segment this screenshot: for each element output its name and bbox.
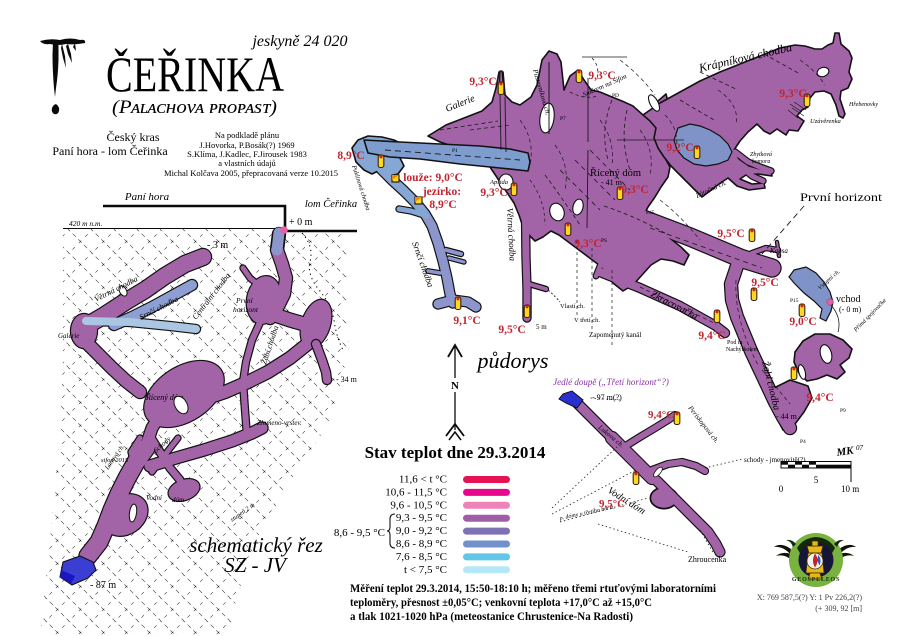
svg-text:Jedlé doupě („Třetí horizont“?: Jedlé doupě („Třetí horizont“?) (553, 377, 669, 387)
svg-text:9,3°C: 9,3°C (469, 76, 496, 88)
svg-text:Kapsa: Kapsa (769, 247, 788, 255)
svg-text:GEOSPELEOS: GEOSPELEOS (792, 577, 840, 583)
svg-text:Zhroucenka: Zhroucenka (688, 555, 727, 564)
svg-text:7,6 - 8,5 °C: 7,6 - 8,5 °C (396, 551, 447, 563)
svg-text:Měření teplot 29.3.2014, 15:50: Měření teplot 29.3.2014, 15:50-18:10 h; … (350, 583, 717, 595)
svg-text:+ 0 m: + 0 m (289, 217, 313, 228)
svg-text:P7: P7 (560, 116, 566, 122)
svg-text:9,5°C: 9,5°C (599, 498, 625, 510)
svg-text:P45: P45 (646, 210, 655, 216)
svg-text:a vlastních údajů: a vlastních údajů (218, 158, 276, 168)
svg-text:8,9°C: 8,9°C (337, 150, 364, 162)
svg-text:PD: PD (612, 93, 619, 99)
svg-text:dóm: dóm (172, 496, 184, 504)
svg-text:N: N (451, 380, 459, 392)
svg-text:8,6 - 8,9 °C: 8,6 - 8,9 °C (396, 538, 447, 550)
svg-text:X: 769 587,5(?) Y: 1 Pv 226: X: 769 587,5(?) Y: 1 Pv 226,2(?) (757, 593, 863, 602)
svg-text:P1: P1 (452, 148, 458, 154)
svg-text:5 m: 5 m (536, 323, 547, 331)
svg-text:- 34 m: - 34 m (336, 375, 358, 384)
svg-text:- 87 m: - 87 m (90, 580, 116, 591)
svg-text:8,9°C: 8,9°C (429, 199, 456, 211)
svg-text:a tlak 1021-1020 hPa (meteosta: a tlak 1021-1020 hPa (meteostanice Chrus… (350, 611, 633, 623)
svg-text:(+ 309, 92 [m]: (+ 309, 92 [m] (815, 604, 862, 613)
svg-text:Na podkladě plánu: Na podkladě plánu (215, 130, 280, 140)
svg-text:9,6 - 10,5 °C: 9,6 - 10,5 °C (390, 499, 447, 511)
svg-text:0: 0 (779, 484, 784, 494)
svg-text:P15: P15 (790, 298, 799, 304)
svg-text:- 44 m: - 44 m (776, 412, 798, 421)
svg-text:- 97 m(?): - 97 m(?) (592, 393, 622, 402)
svg-text:9,5°C: 9,5°C (751, 277, 778, 289)
svg-text:(Pᴀʟᴀᴄʜᴏᴠᴀ ᴘʀᴏᴘᴀsᴛ): (Pᴀʟᴀᴄʜᴏᴠᴀ ᴘʀᴏᴘᴀsᴛ) (112, 97, 277, 118)
svg-text:9,3°C: 9,3°C (480, 187, 507, 199)
svg-text:SZ - JV: SZ - JV (224, 553, 288, 577)
svg-text:9,3°C: 9,3°C (621, 184, 648, 196)
svg-text:Zlomeno-vrstev.: Zlomeno-vrstev. (257, 419, 302, 427)
svg-text:420 m n.m.: 420 m n.m. (69, 219, 102, 228)
svg-text:komora: komora (752, 159, 770, 165)
svg-text:Galerie: Galerie (58, 332, 79, 340)
svg-text:První: První (235, 296, 254, 305)
svg-text:Český kras: Český kras (107, 130, 160, 144)
svg-text:Apsida: Apsida (489, 179, 508, 186)
svg-text:Michal Kolčava 2005, přepracov: Michal Kolčava 2005, přepracovaná verze … (164, 168, 338, 178)
svg-text:horizont: horizont (233, 305, 259, 314)
svg-text:9,2°C: 9,2°C (666, 142, 693, 154)
svg-text:9,3°C: 9,3°C (574, 238, 601, 250)
svg-text:Nachýlkolem: Nachýlkolem (726, 347, 759, 353)
svg-text:Paní hora: Paní hora (124, 191, 170, 203)
svg-text:Hřebenovky: Hřebenovky (848, 102, 878, 108)
svg-text:9,3°C: 9,3°C (779, 88, 806, 100)
svg-text:9,4°C: 9,4°C (698, 330, 725, 342)
svg-text:10,6 - 11,5 °C: 10,6 - 11,5 °C (385, 486, 447, 498)
svg-text:9,0°C: 9,0°C (789, 316, 816, 328)
svg-text:louže: 9,0°C: louže: 9,0°C (403, 172, 463, 184)
svg-text:8,6 - 9,5 °C: 8,6 - 9,5 °C (334, 527, 385, 539)
svg-text:Zapomenutý kanál: Zapomenutý kanál (589, 331, 641, 339)
svg-text:Paní hora - lom Čeřinka: Paní hora - lom Čeřinka (52, 144, 168, 158)
svg-text:teploměry, přesnost ±0,05°C; v: teploměry, přesnost ±0,05°C; venkovní te… (350, 597, 652, 609)
svg-text:Zbytková: Zbytková (750, 152, 772, 158)
svg-text:9,1°C: 9,1°C (453, 315, 480, 327)
svg-text:11,6 < t °C: 11,6 < t °C (399, 474, 447, 486)
svg-text:9,0 - 9,2 °C: 9,0 - 9,2 °C (396, 525, 447, 537)
svg-text:9,4°C: 9,4°C (806, 392, 833, 404)
svg-text:P9: P9 (840, 408, 846, 414)
svg-text:(- 0 m): (- 0 m) (839, 305, 862, 314)
svg-text:První horizont: První horizont (800, 190, 883, 204)
svg-text:9,4°C: 9,4°C (648, 409, 674, 421)
svg-text:- 3 m: - 3 m (207, 240, 228, 251)
svg-text:9,5°C: 9,5°C (498, 324, 525, 336)
svg-text:9,5°C: 9,5°C (717, 228, 744, 240)
svg-text:ČEŘINKA: ČEŘINKA (106, 46, 284, 102)
svg-text:07: 07 (856, 444, 864, 452)
svg-text:půdorys: půdorys (476, 348, 549, 373)
svg-text:lom Čeřinka: lom Čeřinka (305, 198, 357, 210)
svg-text:Stav teplot dne 29.3.2014: Stav teplot dne 29.3.2014 (365, 443, 546, 462)
svg-text:Pod ín: Pod ín (727, 340, 743, 346)
svg-text:PS: PS (601, 238, 607, 244)
svg-text:P4: P4 (800, 439, 806, 445)
svg-text:5: 5 (814, 475, 819, 485)
svg-text:V třetí ch.: V třetí ch. (574, 317, 600, 324)
svg-text:Uzávěrenka: Uzávěrenka (810, 118, 841, 125)
svg-text:9,3 - 9,5 °C: 9,3 - 9,5 °C (396, 512, 447, 524)
svg-text:10 m: 10 m (841, 484, 859, 494)
svg-text:vchod: vchod (836, 294, 860, 305)
svg-text:jezírko:: jezírko: (422, 186, 461, 198)
svg-text:- 41 m: - 41 m (601, 178, 623, 187)
svg-text:t < 7,5 °C: t < 7,5 °C (404, 564, 447, 576)
svg-text:Vlastí ch.: Vlastí ch. (560, 303, 585, 310)
svg-text:Vodní: Vodní (146, 494, 163, 502)
